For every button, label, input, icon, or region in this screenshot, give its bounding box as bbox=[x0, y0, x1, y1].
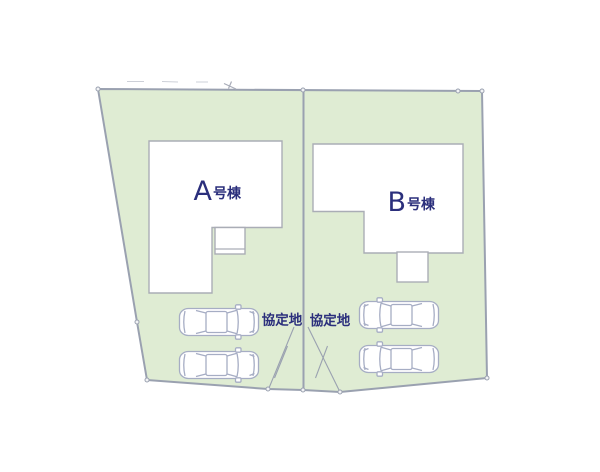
car-icon bbox=[360, 342, 439, 376]
car-icon bbox=[180, 348, 259, 382]
vertex-marker bbox=[301, 88, 305, 92]
house-b-label-letter: B bbox=[387, 187, 406, 218]
house-a-label-letter: A bbox=[194, 176, 213, 207]
vertex-marker bbox=[485, 376, 489, 380]
car-icon bbox=[180, 305, 259, 339]
vertex-marker bbox=[266, 387, 270, 391]
agreement-area-label-left: 協定地 bbox=[262, 312, 303, 329]
boundary-tick-mark bbox=[224, 82, 236, 90]
house-b-label-suffix: 号棟 bbox=[407, 196, 436, 213]
agreement-area-label-right: 協定地 bbox=[310, 312, 351, 329]
site-plan-drawing: A 号棟 B 号棟 協定地 協定地 bbox=[0, 0, 600, 472]
dimension-dashes bbox=[127, 82, 208, 83]
vertex-marker bbox=[96, 87, 100, 91]
vertex-marker bbox=[456, 89, 460, 93]
vertex-marker bbox=[301, 388, 305, 392]
vertex-marker bbox=[480, 89, 484, 93]
house-b-annex bbox=[397, 252, 428, 282]
vertex-marker bbox=[145, 378, 149, 382]
house-a-label-suffix: 号棟 bbox=[213, 185, 242, 202]
site-plan: A 号棟 B 号棟 協定地 協定地 bbox=[0, 0, 600, 472]
vertex-marker bbox=[135, 320, 139, 324]
vertex-marker bbox=[338, 390, 342, 394]
car-icon bbox=[360, 298, 439, 332]
house-a-annex bbox=[215, 228, 245, 255]
